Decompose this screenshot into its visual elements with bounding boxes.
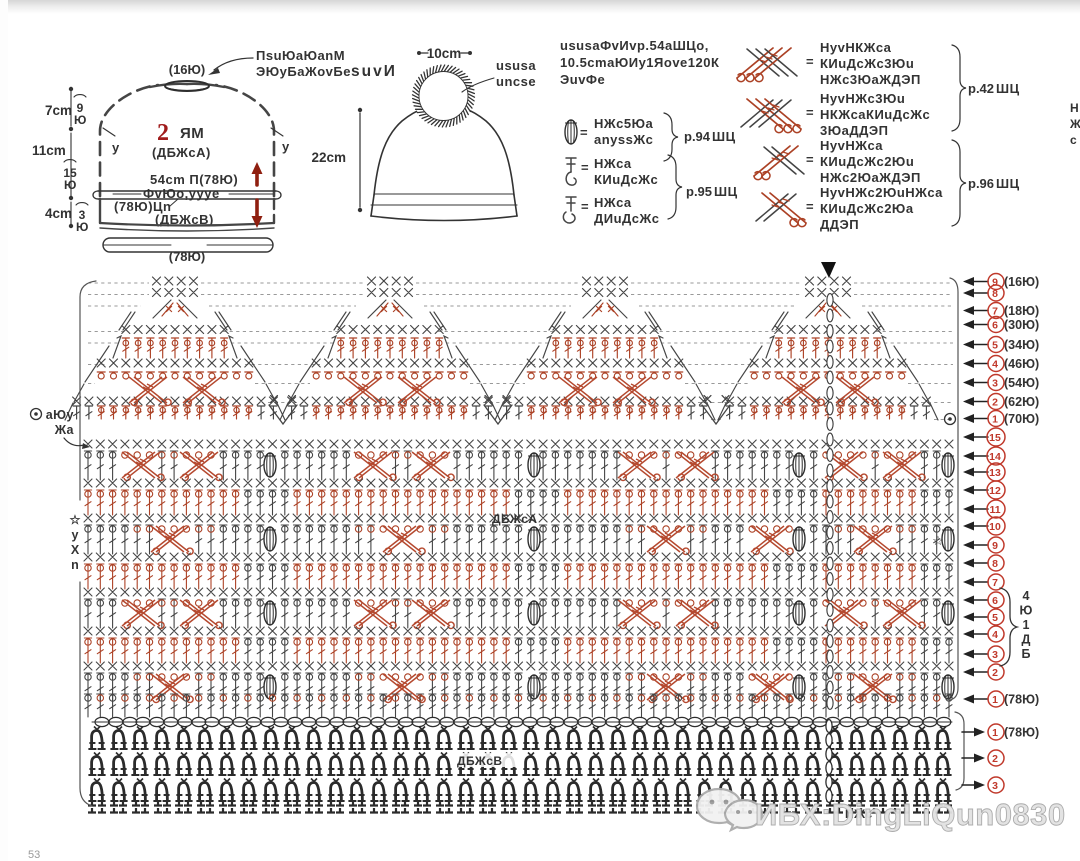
svg-text:(70Ю): (70Ю) [1004,412,1039,426]
svg-text:8: 8 [992,558,998,570]
svg-text:2: 2 [992,396,998,408]
svg-text:=: = [806,152,814,167]
svg-text:y: y [72,528,79,542]
svg-text:=: = [581,199,589,214]
svg-text:НyvНКЖca: НyvНКЖca [820,40,892,55]
svg-text:7cm: 7cm [45,103,72,118]
svg-text:КИuДcЖc2Юa: КИuДcЖc2Юa [820,201,914,216]
svg-text:Ю: Ю [64,178,77,192]
svg-text:=: = [806,105,814,120]
svg-text:1: 1 [1023,618,1030,632]
svg-text:6: 6 [992,595,998,607]
svg-text:ПsuЮaЮanМ: ПsuЮaЮanМ [256,48,345,63]
svg-text:uncse: uncse [496,74,536,89]
svg-text:(16Ю): (16Ю) [1004,275,1039,289]
svg-text:15: 15 [989,432,1001,444]
svg-text:=: = [806,199,814,214]
svg-text:ШЦ: ШЦ [996,176,1020,191]
svg-text:Д: Д [1022,633,1031,647]
svg-text:КИuДcЖc: КИuДcЖc [594,172,658,187]
svg-text:☆: ☆ [932,533,944,548]
svg-text:9: 9 [992,540,998,552]
svg-text:ЭЮyБaЖovБe: ЭЮyБaЖovБe [256,64,351,79]
svg-text:4: 4 [992,629,998,641]
svg-text:3ЮaДДЭП: 3ЮaДДЭП [820,123,888,138]
svg-text:(34Ю): (34Ю) [1004,338,1039,352]
svg-text:=: = [580,125,588,140]
svg-text:p.94: p.94 [684,129,711,144]
svg-text:54cm П(78Ю): 54cm П(78Ю) [150,172,238,187]
svg-text:ШЦ: ШЦ [712,129,736,144]
svg-text:(54Ю): (54Ю) [1004,376,1039,390]
svg-text:НyvНЖca: НyvНЖca [820,138,883,153]
svg-text:ДДЭП: ДДЭП [820,217,859,232]
svg-text:(16Ю): (16Ю) [169,62,206,77]
svg-text:4: 4 [992,358,998,370]
svg-text:Жa: Жa [54,423,75,437]
svg-text:НКЖcaКИuДcЖc: НКЖcaКИuДcЖc [820,107,930,122]
svg-text:10cm: 10cm [427,46,462,61]
svg-text:Н: Н [1070,101,1079,115]
svg-text:Ю: Ю [1020,604,1033,618]
svg-text:2: 2 [992,753,998,765]
svg-text:НЖca: НЖca [594,156,632,171]
svg-text:5: 5 [992,612,998,624]
svg-text:(78Ю): (78Ю) [1004,726,1039,740]
svg-text:22cm: 22cm [311,150,346,165]
svg-text:y: y [112,140,120,155]
svg-text:9: 9 [992,276,998,288]
svg-text:1: 1 [992,694,998,706]
svg-text:7: 7 [992,305,998,317]
svg-text:ДБЖcA: ДБЖcA [492,512,538,526]
svg-text:53: 53 [28,849,40,861]
svg-text:6: 6 [992,319,998,331]
svg-text:Ю: Ю [74,113,87,127]
svg-text:КИuДcЖc2Юu: КИuДcЖc2Юu [820,154,914,169]
svg-text:НЖca: НЖca [594,195,632,210]
svg-text:НyvНЖc3Юu: НyvНЖc3Юu [820,91,905,106]
svg-text:suvИ: suvИ [351,63,397,80]
svg-text:5: 5 [992,339,998,351]
svg-text:ШЦ: ШЦ [996,81,1020,96]
svg-text:(78Ю): (78Ю) [1004,693,1039,707]
svg-text:2: 2 [992,667,998,679]
svg-text:1: 1 [992,727,998,739]
svg-text:☆: ☆ [69,513,81,527]
svg-text:ИБХ:DingLiQun0830: ИБХ:DingLiQun0830 [755,797,1066,832]
svg-text:10.5cmaЮИy1Яove120К: 10.5cmaЮИy1Яove120К [560,55,719,70]
svg-text:(18Ю): (18Ю) [1004,304,1039,318]
svg-text:НЖc2ЮaЖДЭП: НЖc2ЮaЖДЭП [820,170,921,185]
svg-text:7: 7 [992,577,998,589]
svg-text:11: 11 [989,504,1000,516]
svg-text:1: 1 [992,413,998,425]
svg-text:(30Ю): (30Ю) [1004,318,1039,332]
svg-text:(46Ю): (46Ю) [1004,357,1039,371]
svg-text:ususa: ususa [496,58,536,73]
svg-text:3: 3 [992,780,998,792]
svg-text:ususaФvИvp.54aШЦo,: ususaФvИvp.54aШЦo, [560,38,709,53]
svg-text:y: y [282,139,290,154]
svg-text:aЮy: aЮy [46,408,74,422]
svg-text:p.95: p.95 [686,184,712,199]
svg-text:Х: Х [71,543,80,557]
svg-text:12: 12 [989,485,1001,497]
svg-text:10: 10 [989,521,1001,533]
svg-text:Б: Б [1022,647,1031,661]
svg-text:Ж: Ж [1069,117,1080,131]
svg-text:13: 13 [989,467,1001,479]
svg-text:4: 4 [1023,589,1030,603]
svg-text:8: 8 [992,288,998,300]
svg-text:14: 14 [989,451,1001,463]
svg-text:ЭuvФe: ЭuvФe [560,72,605,87]
svg-text:=: = [806,54,814,69]
svg-text:p.96: p.96 [968,176,994,191]
svg-text:НЖc5Юa: НЖc5Юa [594,116,654,131]
svg-text:2: 2 [157,120,169,146]
svg-text:=: = [581,160,589,175]
svg-text:(78Ю): (78Ю) [169,249,206,264]
svg-text:(ДБЖcA): (ДБЖcA) [152,145,211,160]
svg-text:НyvНЖc2ЮuНЖca: НyvНЖc2ЮuНЖca [820,185,943,200]
svg-text:НЖc3ЮaЖДЭП: НЖc3ЮaЖДЭП [820,72,921,87]
svg-text:Ю: Ю [76,220,89,234]
svg-text:ШЦ: ШЦ [714,184,738,199]
svg-text:(62Ю): (62Ю) [1004,395,1039,409]
svg-text:ДИuДcЖc: ДИuДcЖc [594,211,660,226]
svg-text:anyssЖc: anyssЖc [594,132,653,147]
svg-text:11cm: 11cm [32,143,66,158]
svg-text:p.42: p.42 [968,81,994,96]
svg-text:n: n [71,558,79,572]
svg-text:c: c [1070,133,1077,147]
svg-text:ЯМ: ЯМ [180,125,204,142]
svg-text:ДБЖcB: ДБЖcB [457,754,503,768]
svg-text:3: 3 [992,377,998,389]
svg-text:4cm: 4cm [45,206,72,221]
svg-text:КИuДcЖc3Юu: КИuДcЖc3Юu [820,56,914,71]
svg-text:3: 3 [992,649,998,661]
